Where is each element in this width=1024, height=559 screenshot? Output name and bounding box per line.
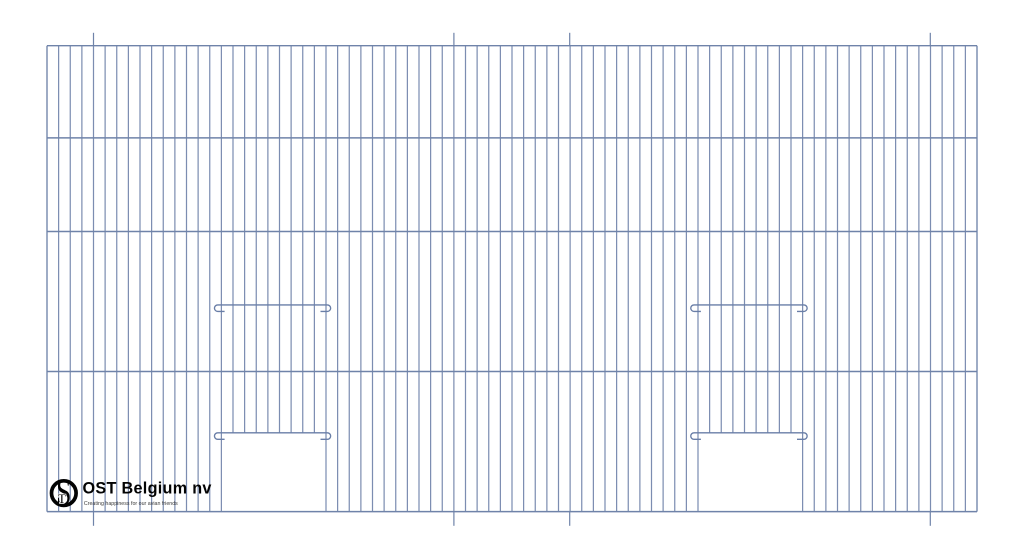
svg-text:Creating happiness for our avi: Creating happiness for our avian friends	[84, 501, 178, 507]
svg-text:T: T	[58, 491, 66, 506]
svg-text:OST Belgium nv: OST Belgium nv	[83, 480, 212, 498]
